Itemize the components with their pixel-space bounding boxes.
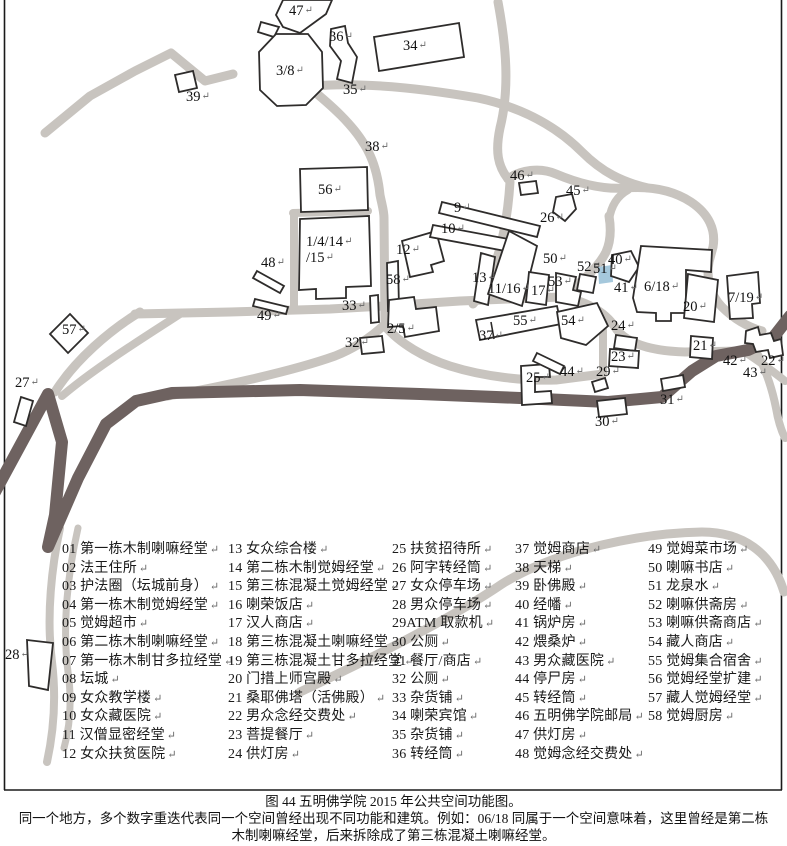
legend-item: 09 女众教学楼↵ <box>62 690 233 709</box>
legend-item: 28 男众停车场↵ <box>392 597 494 616</box>
return-mark: ↵ <box>441 674 450 686</box>
return-mark: ↵ <box>564 276 572 287</box>
legend-item: 55 觉姆集合宿舍↵ <box>648 653 763 672</box>
return-mark: ↵ <box>473 656 482 668</box>
return-mark: ↵ <box>739 544 748 556</box>
return-mark: ↵ <box>210 600 219 612</box>
return-mark: ↵ <box>202 91 210 102</box>
return-mark: ↵ <box>334 184 342 195</box>
legend-item: 57 藏人觉姆经堂↵ <box>648 690 763 709</box>
return-mark: ↵ <box>627 320 635 331</box>
legend-item: 39 卧佛殿↵ <box>515 578 644 597</box>
legend-item: 44 停尸房↵ <box>515 671 644 690</box>
return-mark: ↵ <box>578 730 587 742</box>
return-mark: ↵ <box>676 394 684 405</box>
map-label-31: 31↵ <box>660 392 684 408</box>
map-label-58: 58↵ <box>386 272 410 288</box>
legend-item: 47 供灯房↵ <box>515 727 644 746</box>
legend-item: 05 觉姆超市↵ <box>62 615 233 634</box>
return-mark: ↵ <box>348 711 357 723</box>
return-mark: ↵ <box>402 274 410 285</box>
legend-item: 19 第三栋混凝土甘多拉经堂↵ <box>228 653 414 672</box>
legend-item: 16 喇荣饭店↵ <box>228 597 414 616</box>
building-29 <box>592 378 608 392</box>
legend-item: 38 天梯↵ <box>515 560 644 579</box>
return-mark: ↵ <box>319 544 328 556</box>
legend-item: 13 女众综合楼↵ <box>228 541 414 560</box>
legend-item: 33 杂货铺↵ <box>392 690 494 709</box>
return-mark: ↵ <box>291 749 300 761</box>
building-28 <box>27 640 53 690</box>
legend-item: 27 女众停车场↵ <box>392 578 494 597</box>
legend-item: 22 男众念经交费处↵ <box>228 708 414 727</box>
legend-item: 14 第二栋木制觉姆经堂↵ <box>228 560 414 579</box>
return-mark: ↵ <box>564 563 573 575</box>
return-mark: ↵ <box>167 730 176 742</box>
return-mark: ↵ <box>305 600 314 612</box>
legend-item: 26 阿字转经筒↵ <box>392 560 494 579</box>
map-label-27: 27↵ <box>15 375 39 391</box>
return-mark: ↵ <box>111 674 120 686</box>
return-mark: ↵ <box>381 141 389 152</box>
figure-caption: 图 44 五明佛学院 2015 年公共空间功能图。 同一个地方，多个数字重迭代表… <box>0 794 787 844</box>
return-mark: ↵ <box>483 544 492 556</box>
legend-item: 11 汉僧显密经堂↵ <box>62 727 233 746</box>
caption-note-line1: 同一个地方，多个数字重迭代表同一个空间曾经出现不同功能和建筑。例如：06/18 … <box>0 811 787 828</box>
map-label-38: 38↵ <box>365 139 389 155</box>
legend-column-3: 25 扶贫招待所↵26 阿字转经筒↵27 女众停车场↵28 男众停车场↵29AT… <box>392 541 494 764</box>
return-mark: ↵ <box>577 315 585 326</box>
return-mark: ↵ <box>139 618 148 630</box>
return-mark: ↵ <box>483 600 492 612</box>
return-mark: ↵ <box>210 581 219 593</box>
return-mark: ↵ <box>305 730 314 742</box>
return-mark: ↵ <box>344 236 352 247</box>
return-mark: ↵ <box>611 416 619 427</box>
map-label-26: 26↵ <box>540 210 564 226</box>
legend-item: 51 龙泉水↵ <box>648 578 763 597</box>
legend-item: 32 公厕↵ <box>392 671 494 690</box>
map-label-36: 36↵ <box>329 29 353 45</box>
legend-item: 40 经幡↵ <box>515 597 644 616</box>
return-mark: ↵ <box>635 749 644 761</box>
return-mark: ↵ <box>725 563 734 575</box>
return-mark: ↵ <box>671 281 679 292</box>
return-mark: ↵ <box>753 618 762 630</box>
legend-item: 08 坛城↵ <box>62 671 233 690</box>
return-mark: ↵ <box>699 301 707 312</box>
legend-item: 04 第一栋木制觉姆经堂↵ <box>62 597 233 616</box>
legend-item: 20 门措上师宫殿↵ <box>228 671 414 690</box>
return-mark: ↵ <box>376 693 385 705</box>
return-mark: ↵ <box>635 711 644 723</box>
road-light-8 <box>609 190 628 220</box>
map-label-29: 29↵ <box>596 364 620 380</box>
map-label-45: 45↵ <box>566 183 590 199</box>
return-mark: ↵ <box>576 366 584 377</box>
legend-item: 30 公厕↵ <box>392 634 494 653</box>
return-mark: ↵ <box>153 711 162 723</box>
legend-item: 34 喇荣宾馆↵ <box>392 708 494 727</box>
return-mark: ↵ <box>556 212 564 223</box>
return-mark: ↵ <box>483 581 492 593</box>
return-mark: ↵ <box>78 324 86 335</box>
legend-item: 41 锅炉房↵ <box>515 615 644 634</box>
legend-column-2: 13 女众综合楼↵14 第二栋木制觉姆经堂↵15 第三栋混凝土觉姆经堂↵16 喇… <box>228 541 414 764</box>
legend-item: 03 护法圈（坛城前身）↵ <box>62 578 233 597</box>
return-mark: ↵ <box>210 637 219 649</box>
legend-item: 06 第二栋木制喇嘛经堂↵ <box>62 634 233 653</box>
return-mark: ↵ <box>376 563 385 575</box>
legend-item: 36 转经筒↵ <box>392 746 494 765</box>
return-mark: ↵ <box>753 656 762 668</box>
document-page: { "figure": { "caption_title": "图 44 五明佛… <box>0 0 787 846</box>
return-mark: ↵ <box>627 351 635 362</box>
legend-item: 25 扶贫招待所↵ <box>392 541 494 560</box>
map-label-35: 35↵ <box>343 82 367 98</box>
return-mark: ↵ <box>305 618 314 630</box>
return-mark: ↵ <box>326 252 334 263</box>
legend-item: 21 桑耶佛塔（活佛殿）↵ <box>228 690 414 709</box>
return-mark: ↵ <box>359 84 367 95</box>
return-mark: ↵ <box>345 31 353 42</box>
map-label-37: 37↵ <box>479 328 503 344</box>
legend-item: 54 藏人商店↵ <box>648 634 763 653</box>
return-mark: ↵ <box>711 581 720 593</box>
legend-item: 58 觉姆厨房↵ <box>648 708 763 727</box>
return-mark: ↵ <box>755 292 763 303</box>
return-mark: ↵ <box>21 649 29 660</box>
return-mark: ↵ <box>31 377 39 388</box>
return-mark: ↵ <box>210 544 219 556</box>
return-mark: ↵ <box>529 315 537 326</box>
legend-column-4: 37 觉姆商店↵38 天梯↵39 卧佛殿↵40 经幡↵41 锅炉房↵42 煨桑炉… <box>515 541 644 764</box>
return-mark: ↵ <box>522 283 530 294</box>
legend-item: 10 女众藏医院↵ <box>62 708 233 727</box>
return-mark: ↵ <box>592 544 601 556</box>
return-mark: ↵ <box>462 202 470 213</box>
return-mark: ↵ <box>485 618 494 630</box>
caption-title: 图 44 五明佛学院 2015 年公共空间功能图。 <box>0 794 787 811</box>
legend-item: 01 第一栋木制喇嘛经堂↵ <box>62 541 233 560</box>
return-mark: ↵ <box>559 253 567 264</box>
legend-item: 31 餐厅/商店↵ <box>392 653 494 672</box>
return-mark: ↵ <box>419 40 427 51</box>
return-mark: ↵ <box>725 711 734 723</box>
legend-item: 50 喇嘛书店↵ <box>648 560 763 579</box>
legend-item: 48 觉姆念经交费处↵ <box>515 746 644 765</box>
return-mark: ↵ <box>483 563 492 575</box>
legend-item: 23 菩提餐厅↵ <box>228 727 414 746</box>
legend-item: 37 觉姆商店↵ <box>515 541 644 560</box>
legend-item: 35 杂货铺↵ <box>392 727 494 746</box>
map-label-28: 28↵ <box>5 647 29 663</box>
return-mark: ↵ <box>296 65 304 76</box>
legend-column-1: 01 第一栋木制喇嘛经堂↵02 法王住所↵03 护法圈（坛城前身）↵04 第一栋… <box>62 541 233 764</box>
legend-item: 07 第一栋木制甘多拉经堂↵ <box>62 653 233 672</box>
return-mark: ↵ <box>495 330 503 341</box>
legend-item: 52 喇嘛供斋房↵ <box>648 597 763 616</box>
map-label-49: 49↵ <box>257 308 281 324</box>
return-mark: ↵ <box>333 674 342 686</box>
legend-item: 18 第三栋混凝土喇嘛经堂↵ <box>228 634 414 653</box>
return-mark: ↵ <box>612 366 620 377</box>
map-label-30: 30↵ <box>595 414 619 430</box>
map-label-50: 50↵ <box>543 251 567 267</box>
return-mark: ↵ <box>564 600 573 612</box>
map-label-43: 43↵ <box>743 365 767 381</box>
return-mark: ↵ <box>139 563 148 575</box>
legend-item: 53 喇嘛供斋商店↵ <box>648 615 763 634</box>
return-mark: ↵ <box>273 310 281 321</box>
return-mark: ↵ <box>361 337 369 348</box>
return-mark: ↵ <box>606 656 615 668</box>
road-light-1 <box>498 2 508 179</box>
return-mark: ↵ <box>457 223 465 234</box>
caption-note-line2: 木制喇嘛经堂，后来拆除成了第三栋混凝土喇嘛经堂。 <box>0 828 787 845</box>
legend-item: 43 男众藏医院↵ <box>515 653 644 672</box>
legend-column-5: 49 觉姆菜市场↵50 喇嘛书店↵51 龙泉水↵52 喇嘛供斋房↵53 喇嘛供斋… <box>648 541 763 727</box>
return-mark: ↵ <box>455 749 464 761</box>
return-mark: ↵ <box>578 618 587 630</box>
return-mark: ↵ <box>407 323 415 334</box>
map-label-39: 39↵ <box>186 89 210 105</box>
return-mark: ↵ <box>542 372 550 383</box>
legend-item: 56 觉姆经堂扩建↵ <box>648 671 763 690</box>
return-mark: ↵ <box>578 581 587 593</box>
return-mark: ↵ <box>759 367 767 378</box>
return-mark: ↵ <box>582 185 590 196</box>
return-mark: ↵ <box>709 340 717 351</box>
return-mark: ↵ <box>358 300 366 311</box>
legend-item: 15 第三栋混凝土觉姆经堂↵ <box>228 578 414 597</box>
return-mark: ↵ <box>725 637 734 649</box>
return-mark: ↵ <box>412 244 420 255</box>
return-mark: ↵ <box>305 5 313 16</box>
return-mark: ↵ <box>469 711 478 723</box>
return-mark: ↵ <box>624 254 632 265</box>
legend-item: 45 转经筒↵ <box>515 690 644 709</box>
return-mark: ↵ <box>153 693 162 705</box>
return-mark: ↵ <box>753 693 762 705</box>
map-label-24: 24↵ <box>611 318 635 334</box>
return-mark: ↵ <box>578 674 587 686</box>
building-33 <box>370 295 379 323</box>
legend-item: 42 煨桑炉↵ <box>515 634 644 653</box>
return-mark: ↵ <box>441 637 450 649</box>
return-mark: ↵ <box>526 170 534 181</box>
legend-item: 24 供灯房↵ <box>228 746 414 765</box>
return-mark: ↵ <box>578 693 587 705</box>
return-mark: ↵ <box>455 730 464 742</box>
legend-item: 46 五明佛学院邮局↵ <box>515 708 644 727</box>
return-mark: ↵ <box>578 637 587 649</box>
legend-item: 17 汉人商店↵ <box>228 615 414 634</box>
return-mark: ↵ <box>455 693 464 705</box>
return-mark: ↵ <box>777 355 785 366</box>
legend-item: 12 女众扶贫医院↵ <box>62 746 233 765</box>
return-mark: ↵ <box>167 749 176 761</box>
return-mark: ↵ <box>630 282 638 293</box>
building-31 <box>661 375 685 391</box>
map-label-48: 48↵ <box>261 255 285 271</box>
legend-item: 02 法王住所↵ <box>62 560 233 579</box>
legend-item: 29ATM 取款机↵ <box>392 615 494 634</box>
return-mark: ↵ <box>277 257 285 268</box>
building-48-a <box>253 271 284 293</box>
legend-item: 49 觉姆菜市场↵ <box>648 541 763 560</box>
return-mark: ↵ <box>739 600 748 612</box>
return-mark: ↵ <box>753 674 762 686</box>
